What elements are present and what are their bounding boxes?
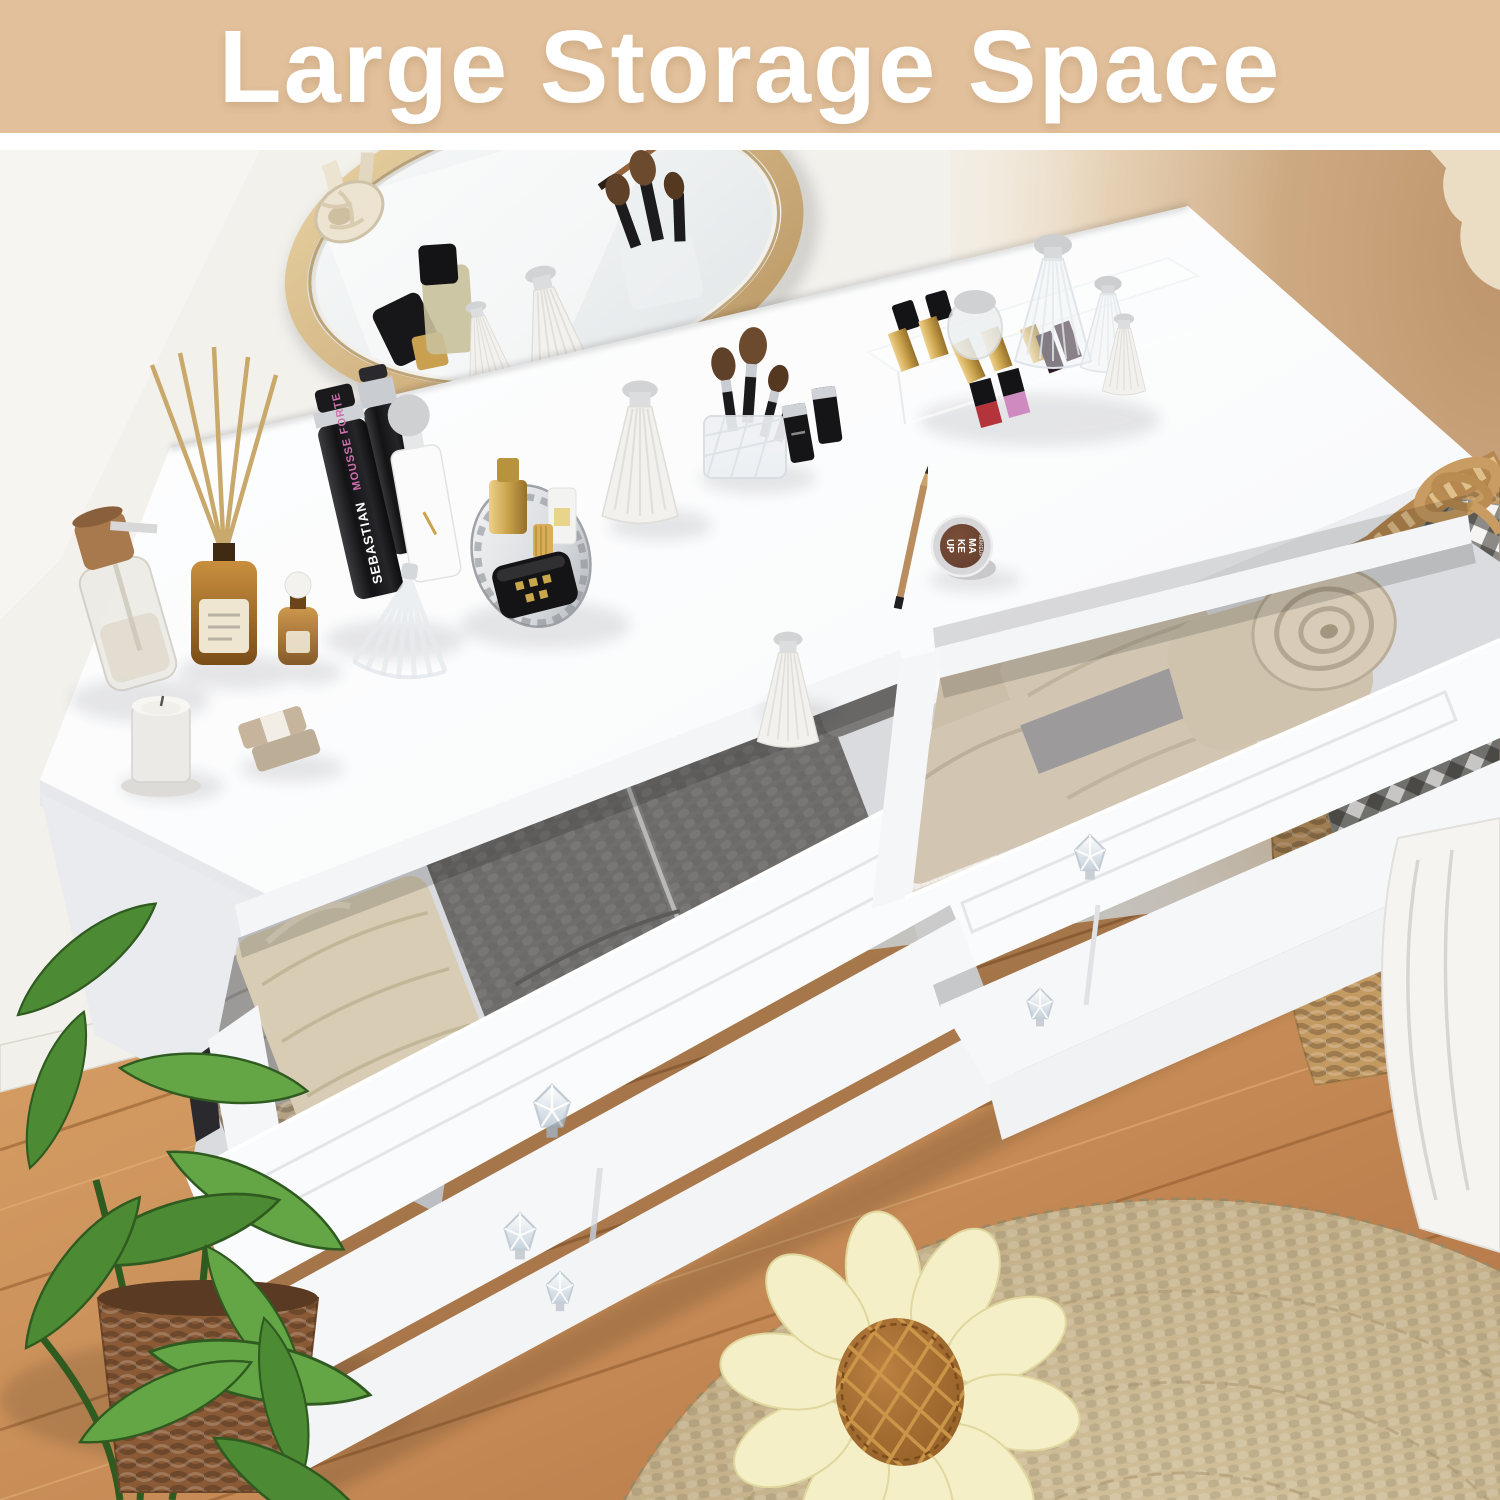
candle (121, 696, 201, 797)
perfume-mini-gold (533, 524, 553, 558)
svg-text:UP: UP (944, 539, 955, 553)
banner: Large Storage Space (0, 0, 1500, 133)
product-image: Large Storage Space (0, 0, 1500, 1500)
svg-text:KE: KE (955, 539, 966, 553)
diffuser-neck (213, 543, 235, 563)
svg-text:MAKEUP: MAKEUP (977, 535, 983, 557)
banner-title: Large Storage Space (219, 15, 1282, 118)
svg-text:MA: MA (966, 538, 977, 554)
glass-jar (948, 290, 1002, 359)
scene-illustration: SEBASTIAN MOUSSE FORTE (0, 150, 1500, 1500)
